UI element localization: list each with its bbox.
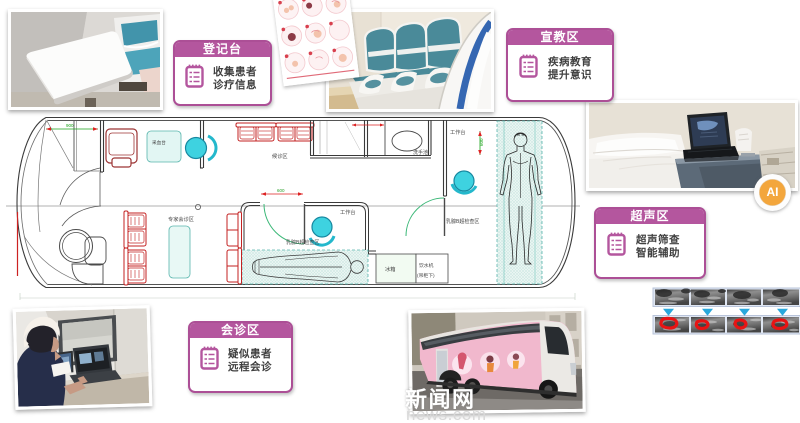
- svg-text:600: 600: [479, 138, 484, 146]
- svg-text:冰箱: 冰箱: [385, 265, 395, 273]
- svg-text:600: 600: [277, 188, 285, 193]
- svg-text:饮水机: 饮水机: [419, 262, 434, 269]
- svg-text:候诊区: 候诊区: [272, 152, 288, 160]
- svg-text:乳腺B超检查区: 乳腺B超检查区: [286, 239, 319, 246]
- svg-text:工作台: 工作台: [450, 128, 466, 136]
- svg-text:洗手池: 洗手池: [413, 149, 428, 156]
- svg-text:(吊柜下): (吊柜下): [417, 272, 435, 279]
- svg-text:工作台: 工作台: [340, 208, 356, 216]
- svg-text:乳腺B超检查区: 乳腺B超检查区: [446, 218, 479, 225]
- svg-text:采血台: 采血台: [152, 139, 166, 146]
- svg-text:900: 900: [66, 123, 74, 128]
- svg-text:专家会诊区: 专家会诊区: [168, 215, 194, 223]
